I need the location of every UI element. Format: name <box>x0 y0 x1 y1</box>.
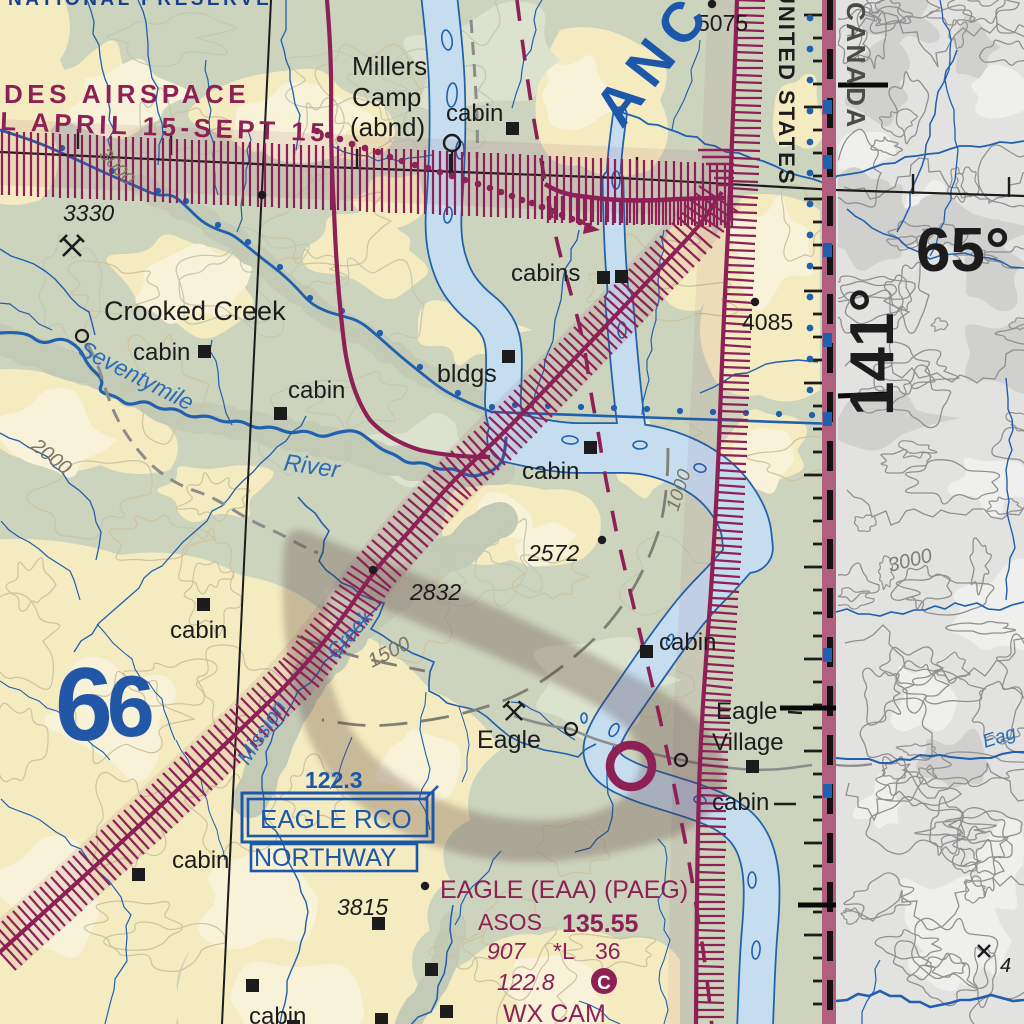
svg-text:WX CAM: WX CAM <box>503 1000 606 1024</box>
svg-text:cabin: cabin <box>172 847 229 874</box>
svg-text:cabin: cabin <box>249 1003 306 1024</box>
svg-text:907: 907 <box>487 938 527 964</box>
svg-text:65°: 65° <box>916 216 1010 285</box>
svg-text:4085: 4085 <box>742 309 793 335</box>
svg-text:Eagle: Eagle <box>477 726 541 754</box>
svg-text:cabin: cabin <box>288 377 345 404</box>
svg-text:Camp: Camp <box>352 82 421 112</box>
svg-text:cabin: cabin <box>446 100 503 127</box>
svg-text:2572: 2572 <box>527 540 579 566</box>
svg-text:NORTHWAY: NORTHWAY <box>254 844 397 872</box>
svg-text:EAGLE RCO: EAGLE RCO <box>260 804 412 834</box>
svg-text:cabin: cabin <box>659 629 716 656</box>
svg-text:Village: Village <box>712 729 784 756</box>
svg-text:66: 66 <box>55 647 152 763</box>
svg-text:135.55: 135.55 <box>562 910 639 938</box>
svg-text:3330: 3330 <box>63 200 114 226</box>
svg-text:36: 36 <box>595 938 621 964</box>
svg-text:UNITED STATES: UNITED STATES <box>774 0 799 186</box>
svg-text:Crooked Creek: Crooked Creek <box>104 296 286 326</box>
svg-text:cabin: cabin <box>712 789 769 816</box>
svg-text:2832: 2832 <box>409 579 461 605</box>
svg-text:bldgs: bldgs <box>437 360 497 388</box>
svg-text:122.8: 122.8 <box>497 969 555 995</box>
svg-text:EAGLE (EAA) (PAEG): EAGLE (EAA) (PAEG) <box>440 876 688 904</box>
svg-text:3815: 3815 <box>337 894 388 920</box>
svg-text:C: C <box>597 973 611 994</box>
svg-text:Millers: Millers <box>352 51 427 81</box>
svg-text:4: 4 <box>1000 955 1011 977</box>
svg-text:Eagle: Eagle <box>716 698 777 725</box>
svg-text:*L: *L <box>553 938 575 964</box>
svg-text:DES AIRSPACE: DES AIRSPACE <box>4 79 250 109</box>
svg-text:CANADA: CANADA <box>841 2 871 130</box>
svg-text:cabin: cabin <box>522 458 579 485</box>
svg-text:122.3: 122.3 <box>305 767 363 793</box>
svg-text:NATIONAL PRESERVE: NATIONAL PRESERVE <box>8 0 272 10</box>
svg-text:cabins: cabins <box>511 260 580 287</box>
svg-text:ASOS: ASOS <box>478 909 542 935</box>
svg-text:(abnd): (abnd) <box>350 112 425 142</box>
svg-text:cabin: cabin <box>170 617 227 644</box>
svg-text:cabin: cabin <box>133 339 190 366</box>
svg-text:141°: 141° <box>838 288 907 416</box>
